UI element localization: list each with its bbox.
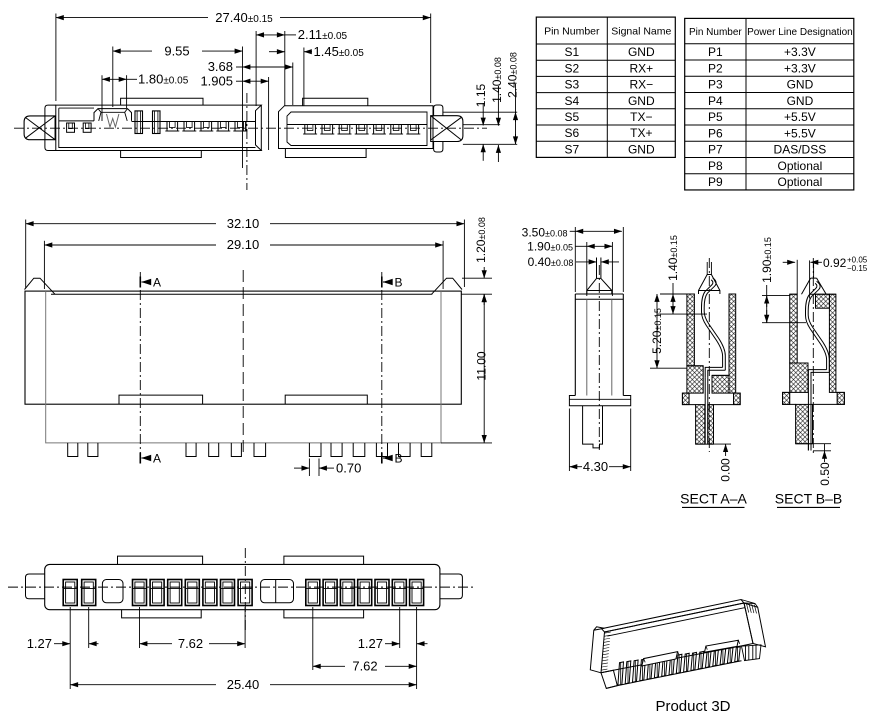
- svg-text:1.905: 1.905: [200, 73, 233, 88]
- svg-text:P2: P2: [708, 61, 723, 75]
- svg-text:S1: S1: [564, 45, 579, 59]
- svg-text:3.50±0.08: 3.50±0.08: [522, 225, 568, 239]
- svg-text:+5.5V: +5.5V: [784, 126, 816, 140]
- svg-text:SECT A–A: SECT A–A: [680, 491, 747, 507]
- svg-text:P1: P1: [708, 45, 723, 59]
- svg-text:Product 3D: Product 3D: [655, 698, 730, 715]
- svg-text:Pin Number: Pin Number: [689, 27, 742, 38]
- svg-text:S5: S5: [564, 110, 579, 124]
- svg-text:7.62: 7.62: [352, 659, 377, 674]
- svg-text:TX−: TX−: [630, 110, 652, 124]
- svg-text:1.27: 1.27: [27, 636, 52, 651]
- svg-text:1.90±0.05: 1.90±0.05: [527, 239, 573, 253]
- svg-text:GND: GND: [628, 45, 655, 59]
- svg-text:Power Line Designation: Power Line Designation: [747, 27, 853, 38]
- svg-text:P7: P7: [708, 143, 723, 157]
- svg-text:7.62: 7.62: [178, 636, 203, 651]
- svg-text:Optional: Optional: [778, 175, 823, 189]
- svg-text:0.00: 0.00: [719, 458, 733, 482]
- svg-text:1.40±0.15: 1.40±0.15: [666, 235, 680, 281]
- svg-text:S7: S7: [564, 142, 579, 156]
- svg-text:GND: GND: [787, 78, 814, 92]
- svg-text:RX−: RX−: [629, 78, 653, 92]
- svg-text:1.20±0.08: 1.20±0.08: [474, 217, 488, 263]
- svg-text:GND: GND: [628, 94, 655, 108]
- svg-text:−0.15: −0.15: [847, 264, 868, 273]
- svg-text:RX+: RX+: [629, 61, 653, 75]
- svg-text:2.40±0.08: 2.40±0.08: [506, 52, 520, 98]
- svg-text:1.15: 1.15: [474, 83, 488, 107]
- svg-text:9.55: 9.55: [164, 43, 189, 58]
- svg-text:S6: S6: [564, 126, 579, 140]
- svg-text:29.10: 29.10: [227, 237, 260, 252]
- svg-text:SECT B–B: SECT B–B: [775, 491, 842, 507]
- svg-text:3.68: 3.68: [208, 59, 233, 74]
- svg-text:B: B: [395, 276, 403, 290]
- svg-text:0.50: 0.50: [818, 462, 832, 486]
- svg-text:GND: GND: [628, 142, 655, 156]
- svg-text:32.10: 32.10: [227, 216, 260, 231]
- svg-text:11.00: 11.00: [475, 351, 489, 380]
- svg-text:P4: P4: [708, 94, 723, 108]
- svg-text:P5: P5: [708, 110, 723, 124]
- svg-text:A: A: [153, 452, 161, 466]
- svg-text:Pin Number: Pin Number: [544, 26, 600, 38]
- svg-text:P6: P6: [708, 126, 723, 140]
- svg-text:S2: S2: [564, 61, 579, 75]
- svg-text:B: B: [395, 452, 403, 466]
- svg-text:+3.3V: +3.3V: [784, 61, 816, 75]
- svg-text:0.92: 0.92: [823, 256, 847, 270]
- svg-text:+3.3V: +3.3V: [784, 45, 816, 59]
- svg-text:0.40±0.08: 0.40±0.08: [528, 255, 574, 269]
- svg-text:P9: P9: [708, 175, 723, 189]
- svg-text:1.40±0.08: 1.40±0.08: [490, 57, 504, 103]
- svg-text:GND: GND: [787, 94, 814, 108]
- svg-text:A: A: [153, 276, 161, 290]
- svg-text:S3: S3: [564, 78, 579, 92]
- svg-text:0.70: 0.70: [336, 460, 361, 475]
- svg-text:4.30: 4.30: [583, 459, 608, 474]
- svg-text:Signal Name: Signal Name: [611, 26, 671, 38]
- svg-text:TX+: TX+: [630, 126, 652, 140]
- svg-text:P3: P3: [708, 78, 723, 92]
- svg-text:S4: S4: [564, 94, 579, 108]
- svg-text:P8: P8: [708, 159, 723, 173]
- svg-text:+5.5V: +5.5V: [784, 110, 816, 124]
- svg-text:25.40: 25.40: [227, 677, 260, 692]
- svg-text:Optional: Optional: [778, 159, 823, 173]
- svg-text:DAS/DSS: DAS/DSS: [774, 143, 827, 157]
- svg-text:1.90±0.15: 1.90±0.15: [760, 237, 774, 283]
- svg-text:1.27: 1.27: [358, 636, 383, 651]
